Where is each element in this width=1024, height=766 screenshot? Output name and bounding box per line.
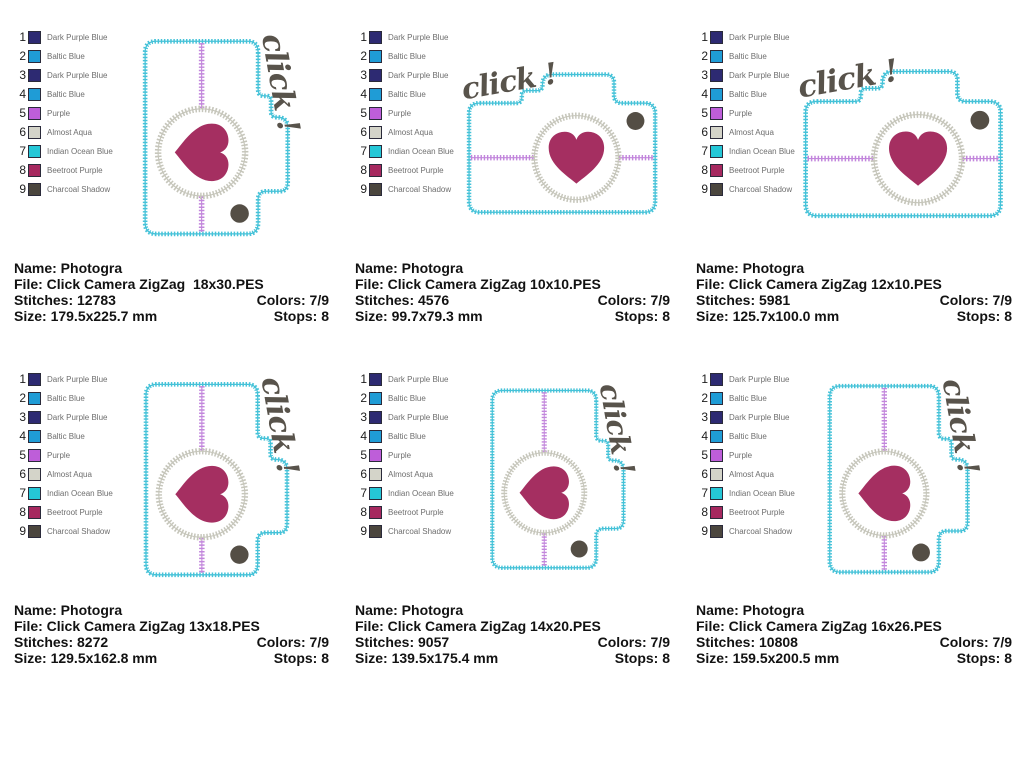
legend-row: 1Dark Purple Blue	[355, 28, 443, 47]
legend-number: 2	[696, 392, 708, 405]
legend-color-swatch	[28, 107, 41, 120]
legend-label: Baltic Blue	[729, 432, 767, 441]
design-info: Name: Photogra File: Click Camera ZigZag…	[14, 602, 329, 666]
legend-label: Baltic Blue	[388, 432, 426, 441]
legend-label: Charcoal Shadow	[388, 527, 451, 536]
design-preview: 1Dark Purple Blue2Baltic Blue3Dark Purpl…	[341, 18, 682, 258]
thread-color-legend: 1Dark Purple Blue2Baltic Blue3Dark Purpl…	[341, 360, 443, 600]
design-file: File: Click Camera ZigZag 10x10.PES	[355, 276, 670, 292]
legend-color-swatch	[710, 69, 723, 82]
legend-row: 2Baltic Blue	[696, 47, 784, 66]
legend-number: 8	[696, 164, 708, 177]
legend-row: 4Baltic Blue	[14, 85, 102, 104]
legend-number: 2	[14, 50, 26, 63]
legend-number: 4	[696, 88, 708, 101]
legend-label: Dark Purple Blue	[47, 375, 107, 384]
legend-color-swatch	[710, 506, 723, 519]
legend-number: 1	[696, 373, 708, 386]
camera-artwork	[443, 18, 682, 258]
legend-label: Dark Purple Blue	[729, 375, 789, 384]
legend-number: 9	[14, 183, 26, 196]
legend-number: 6	[355, 126, 367, 139]
legend-row: 2Baltic Blue	[14, 47, 102, 66]
design-card-18x30: 1Dark Purple Blue2Baltic Blue3Dark Purpl…	[0, 18, 341, 360]
design-info: Name: Photogra File: Click Camera ZigZag…	[696, 602, 1012, 666]
legend-label: Baltic Blue	[388, 52, 426, 61]
legend-label: Dark Purple Blue	[729, 33, 789, 42]
legend-row: 5Purple	[696, 446, 784, 465]
legend-label: Purple	[729, 109, 752, 118]
legend-row: 6Almost Aqua	[696, 465, 784, 484]
legend-label: Charcoal Shadow	[388, 185, 451, 194]
legend-color-swatch	[28, 449, 41, 462]
design-preview: 1Dark Purple Blue2Baltic Blue3Dark Purpl…	[682, 360, 1024, 600]
legend-row: 8Beetroot Purple	[14, 503, 102, 522]
legend-row: 3Dark Purple Blue	[355, 66, 443, 85]
design-name: Name: Photogra	[696, 602, 1012, 618]
design-card-14x20: 1Dark Purple Blue2Baltic Blue3Dark Purpl…	[341, 360, 682, 702]
design-file: File: Click Camera ZigZag 13x18.PES	[14, 618, 329, 634]
legend-color-swatch	[369, 449, 382, 462]
design-info: Name: Photogra File: Click Camera ZigZag…	[696, 260, 1012, 324]
legend-label: Beetroot Purple	[47, 508, 103, 517]
legend-label: Baltic Blue	[729, 90, 767, 99]
legend-number: 7	[696, 145, 708, 158]
legend-number: 1	[355, 31, 367, 44]
camera-artwork	[102, 360, 341, 600]
legend-color-swatch	[28, 468, 41, 481]
legend-number: 8	[14, 506, 26, 519]
camera-artwork	[443, 360, 682, 600]
design-preview: 1Dark Purple Blue2Baltic Blue3Dark Purpl…	[682, 18, 1024, 258]
legend-label: Baltic Blue	[47, 52, 85, 61]
design-colors: Colors: 7/9	[257, 634, 329, 650]
legend-color-swatch	[710, 164, 723, 177]
legend-label: Dark Purple Blue	[729, 71, 789, 80]
legend-row: 7Indian Ocean Blue	[696, 484, 784, 503]
legend-number: 8	[355, 164, 367, 177]
legend-number: 3	[355, 411, 367, 424]
legend-color-swatch	[369, 506, 382, 519]
legend-color-swatch	[28, 164, 41, 177]
legend-number: 7	[696, 487, 708, 500]
legend-color-swatch	[369, 373, 382, 386]
legend-color-swatch	[369, 487, 382, 500]
legend-number: 6	[696, 468, 708, 481]
legend-color-swatch	[369, 164, 382, 177]
legend-color-swatch	[28, 392, 41, 405]
legend-number: 6	[355, 468, 367, 481]
design-colors: Colors: 7/9	[940, 292, 1012, 308]
legend-color-swatch	[710, 411, 723, 424]
legend-color-swatch	[28, 69, 41, 82]
legend-row: 8Beetroot Purple	[355, 503, 443, 522]
legend-row: 9Charcoal Shadow	[696, 180, 784, 199]
legend-label: Beetroot Purple	[729, 166, 785, 175]
legend-number: 3	[14, 411, 26, 424]
legend-row: 7Indian Ocean Blue	[14, 484, 102, 503]
legend-row: 8Beetroot Purple	[696, 503, 784, 522]
design-stitches: Stitches: 8272	[14, 634, 108, 650]
legend-label: Baltic Blue	[729, 394, 767, 403]
legend-color-swatch	[28, 506, 41, 519]
legend-row: 4Baltic Blue	[696, 85, 784, 104]
legend-color-swatch	[369, 69, 382, 82]
legend-number: 1	[14, 31, 26, 44]
design-grid: 1Dark Purple Blue2Baltic Blue3Dark Purpl…	[0, 0, 1024, 702]
legend-color-swatch	[28, 411, 41, 424]
legend-color-swatch	[710, 88, 723, 101]
legend-label: Dark Purple Blue	[388, 33, 448, 42]
legend-label: Purple	[47, 451, 70, 460]
legend-label: Beetroot Purple	[388, 508, 444, 517]
legend-color-swatch	[710, 525, 723, 538]
legend-color-swatch	[369, 411, 382, 424]
legend-number: 5	[696, 449, 708, 462]
design-size: Size: 125.7x100.0 mm	[696, 308, 839, 324]
legend-color-swatch	[28, 126, 41, 139]
legend-color-swatch	[710, 449, 723, 462]
legend-color-swatch	[28, 373, 41, 386]
legend-number: 5	[355, 449, 367, 462]
design-stops: Stops: 8	[274, 308, 329, 324]
legend-color-swatch	[28, 145, 41, 158]
legend-row: 1Dark Purple Blue	[355, 370, 443, 389]
legend-label: Purple	[388, 109, 411, 118]
legend-row: 3Dark Purple Blue	[355, 408, 443, 427]
legend-label: Almost Aqua	[47, 128, 92, 137]
design-name: Name: Photogra	[14, 260, 329, 276]
legend-color-swatch	[28, 525, 41, 538]
legend-number: 8	[696, 506, 708, 519]
design-card-10x10: 1Dark Purple Blue2Baltic Blue3Dark Purpl…	[341, 18, 682, 360]
legend-number: 7	[355, 145, 367, 158]
legend-label: Almost Aqua	[729, 128, 774, 137]
legend-row: 5Purple	[14, 446, 102, 465]
legend-number: 7	[355, 487, 367, 500]
legend-row: 3Dark Purple Blue	[14, 66, 102, 85]
legend-color-swatch	[369, 183, 382, 196]
legend-row: 1Dark Purple Blue	[696, 28, 784, 47]
design-info: Name: Photogra File: Click Camera ZigZag…	[355, 602, 670, 666]
legend-number: 4	[14, 430, 26, 443]
design-file: File: Click Camera ZigZag 16x26.PES	[696, 618, 1012, 634]
thread-color-legend: 1Dark Purple Blue2Baltic Blue3Dark Purpl…	[682, 360, 784, 600]
legend-row: 5Purple	[355, 104, 443, 123]
legend-color-swatch	[28, 183, 41, 196]
legend-color-swatch	[369, 392, 382, 405]
legend-label: Baltic Blue	[47, 432, 85, 441]
design-info: Name: Photogra File: Click Camera ZigZag…	[14, 260, 329, 324]
design-name: Name: Photogra	[355, 602, 670, 618]
legend-row: 6Almost Aqua	[355, 465, 443, 484]
legend-row: 1Dark Purple Blue	[696, 370, 784, 389]
legend-row: 7Indian Ocean Blue	[355, 484, 443, 503]
legend-color-swatch	[28, 50, 41, 63]
thread-color-legend: 1Dark Purple Blue2Baltic Blue3Dark Purpl…	[0, 18, 102, 258]
legend-number: 4	[355, 430, 367, 443]
legend-label: Charcoal Shadow	[47, 185, 110, 194]
legend-label: Purple	[388, 451, 411, 460]
design-size: Size: 139.5x175.4 mm	[355, 650, 498, 666]
legend-color-swatch	[710, 430, 723, 443]
legend-number: 5	[355, 107, 367, 120]
legend-color-swatch	[369, 468, 382, 481]
design-stops: Stops: 8	[615, 650, 670, 666]
legend-row: 1Dark Purple Blue	[14, 370, 102, 389]
design-colors: Colors: 7/9	[598, 292, 670, 308]
legend-color-swatch	[369, 430, 382, 443]
legend-row: 1Dark Purple Blue	[14, 28, 102, 47]
camera-portrait-svg	[819, 377, 989, 583]
legend-label: Almost Aqua	[388, 128, 433, 137]
camera-artwork	[784, 18, 1024, 258]
legend-row: 9Charcoal Shadow	[14, 522, 102, 541]
camera-portrait-svg	[482, 382, 644, 578]
legend-row: 6Almost Aqua	[696, 123, 784, 142]
design-size: Size: 99.7x79.3 mm	[355, 308, 483, 324]
design-info: Name: Photogra File: Click Camera ZigZag…	[355, 260, 670, 324]
legend-color-swatch	[28, 88, 41, 101]
legend-number: 9	[696, 183, 708, 196]
legend-color-swatch	[710, 183, 723, 196]
catalog-sheet: 1Dark Purple Blue2Baltic Blue3Dark Purpl…	[0, 0, 1024, 766]
legend-color-swatch	[710, 145, 723, 158]
camera-landscape-svg	[796, 49, 1012, 227]
legend-number: 6	[14, 126, 26, 139]
design-stitches: Stitches: 5981	[696, 292, 790, 308]
legend-color-swatch	[28, 31, 41, 44]
legend-label: Baltic Blue	[47, 90, 85, 99]
design-card-16x26: 1Dark Purple Blue2Baltic Blue3Dark Purpl…	[682, 360, 1024, 702]
legend-number: 1	[696, 31, 708, 44]
legend-number: 5	[696, 107, 708, 120]
legend-row: 4Baltic Blue	[696, 427, 784, 446]
legend-number: 2	[355, 392, 367, 405]
design-stitches: Stitches: 12783	[14, 292, 116, 308]
legend-label: Dark Purple Blue	[388, 71, 448, 80]
legend-row: 8Beetroot Purple	[355, 161, 443, 180]
legend-color-swatch	[710, 31, 723, 44]
legend-row: 7Indian Ocean Blue	[355, 142, 443, 161]
legend-label: Beetroot Purple	[47, 166, 103, 175]
legend-row: 3Dark Purple Blue	[14, 408, 102, 427]
design-stops: Stops: 8	[957, 308, 1012, 324]
legend-color-swatch	[369, 50, 382, 63]
legend-row: 8Beetroot Purple	[14, 161, 102, 180]
legend-number: 3	[355, 69, 367, 82]
legend-number: 7	[14, 487, 26, 500]
design-colors: Colors: 7/9	[940, 634, 1012, 650]
legend-color-swatch	[369, 126, 382, 139]
legend-number: 5	[14, 107, 26, 120]
design-card-12x10: 1Dark Purple Blue2Baltic Blue3Dark Purpl…	[682, 18, 1024, 360]
legend-label: Charcoal Shadow	[47, 527, 110, 536]
legend-number: 9	[696, 525, 708, 538]
design-stitches: Stitches: 10808	[696, 634, 798, 650]
legend-color-swatch	[710, 50, 723, 63]
legend-number: 4	[696, 430, 708, 443]
design-name: Name: Photogra	[14, 602, 329, 618]
legend-row: 4Baltic Blue	[355, 85, 443, 104]
legend-row: 2Baltic Blue	[696, 389, 784, 408]
legend-label: Almost Aqua	[47, 470, 92, 479]
legend-row: 4Baltic Blue	[355, 427, 443, 446]
camera-artwork	[784, 360, 1024, 600]
legend-label: Almost Aqua	[388, 470, 433, 479]
legend-color-swatch	[710, 487, 723, 500]
legend-color-swatch	[369, 88, 382, 101]
legend-row: 7Indian Ocean Blue	[14, 142, 102, 161]
legend-number: 2	[355, 50, 367, 63]
design-size: Size: 129.5x162.8 mm	[14, 650, 157, 666]
design-preview: 1Dark Purple Blue2Baltic Blue3Dark Purpl…	[0, 360, 341, 600]
legend-color-swatch	[710, 468, 723, 481]
camera-artwork	[102, 18, 341, 258]
legend-number: 3	[14, 69, 26, 82]
legend-number: 8	[14, 164, 26, 177]
design-file: File: Click Camera ZigZag 14x20.PES	[355, 618, 670, 634]
legend-row: 2Baltic Blue	[355, 389, 443, 408]
legend-label: Purple	[729, 451, 752, 460]
legend-number: 6	[14, 468, 26, 481]
legend-row: 6Almost Aqua	[14, 465, 102, 484]
legend-label: Purple	[47, 109, 70, 118]
design-colors: Colors: 7/9	[598, 634, 670, 650]
legend-label: Baltic Blue	[388, 394, 426, 403]
design-file: File: Click Camera ZigZag 18x30.PES	[14, 276, 329, 292]
camera-portrait-svg	[134, 32, 310, 245]
legend-row: 6Almost Aqua	[355, 123, 443, 142]
legend-number: 9	[14, 525, 26, 538]
camera-portrait-svg	[135, 375, 309, 586]
design-stitches: Stitches: 4576	[355, 292, 449, 308]
legend-row: 3Dark Purple Blue	[696, 66, 784, 85]
legend-label: Dark Purple Blue	[388, 375, 448, 384]
legend-label: Dark Purple Blue	[47, 413, 107, 422]
legend-color-swatch	[710, 126, 723, 139]
legend-label: Baltic Blue	[729, 52, 767, 61]
legend-number: 5	[14, 449, 26, 462]
thread-color-legend: 1Dark Purple Blue2Baltic Blue3Dark Purpl…	[682, 18, 784, 258]
legend-row: 5Purple	[696, 104, 784, 123]
legend-label: Dark Purple Blue	[47, 33, 107, 42]
legend-row: 9Charcoal Shadow	[355, 180, 443, 199]
legend-color-swatch	[710, 107, 723, 120]
legend-label: Baltic Blue	[47, 394, 85, 403]
legend-number: 3	[696, 69, 708, 82]
design-name: Name: Photogra	[696, 260, 1012, 276]
legend-label: Charcoal Shadow	[729, 185, 792, 194]
legend-number: 6	[696, 126, 708, 139]
legend-row: 8Beetroot Purple	[696, 161, 784, 180]
legend-color-swatch	[369, 525, 382, 538]
legend-row: 9Charcoal Shadow	[696, 522, 784, 541]
legend-row: 6Almost Aqua	[14, 123, 102, 142]
legend-label: Dark Purple Blue	[388, 413, 448, 422]
design-preview: 1Dark Purple Blue2Baltic Blue3Dark Purpl…	[0, 18, 341, 258]
legend-number: 7	[14, 145, 26, 158]
legend-label: Almost Aqua	[729, 470, 774, 479]
design-stops: Stops: 8	[274, 650, 329, 666]
legend-color-swatch	[28, 430, 41, 443]
design-size: Size: 159.5x200.5 mm	[696, 650, 839, 666]
legend-color-swatch	[369, 145, 382, 158]
legend-number: 2	[696, 50, 708, 63]
legend-color-swatch	[710, 373, 723, 386]
legend-row: 2Baltic Blue	[14, 389, 102, 408]
legend-row: 5Purple	[355, 446, 443, 465]
legend-number: 9	[355, 183, 367, 196]
legend-number: 4	[355, 88, 367, 101]
design-name: Name: Photogra	[355, 260, 670, 276]
legend-number: 1	[14, 373, 26, 386]
legend-row: 9Charcoal Shadow	[14, 180, 102, 199]
design-stops: Stops: 8	[615, 308, 670, 324]
legend-number: 4	[14, 88, 26, 101]
legend-row: 5Purple	[14, 104, 102, 123]
design-colors: Colors: 7/9	[257, 292, 329, 308]
legend-label: Baltic Blue	[388, 90, 426, 99]
camera-landscape-svg	[460, 53, 666, 223]
legend-label: Beetroot Purple	[388, 166, 444, 175]
legend-label: Charcoal Shadow	[729, 527, 792, 536]
legend-color-swatch	[369, 107, 382, 120]
design-stitches: Stitches: 9057	[355, 634, 449, 650]
thread-color-legend: 1Dark Purple Blue2Baltic Blue3Dark Purpl…	[341, 18, 443, 258]
legend-color-swatch	[369, 31, 382, 44]
legend-number: 8	[355, 506, 367, 519]
legend-color-swatch	[28, 487, 41, 500]
design-preview: 1Dark Purple Blue2Baltic Blue3Dark Purpl…	[341, 360, 682, 600]
legend-row: 9Charcoal Shadow	[355, 522, 443, 541]
design-size: Size: 179.5x225.7 mm	[14, 308, 157, 324]
legend-row: 4Baltic Blue	[14, 427, 102, 446]
legend-number: 2	[14, 392, 26, 405]
legend-color-swatch	[710, 392, 723, 405]
legend-row: 2Baltic Blue	[355, 47, 443, 66]
legend-number: 1	[355, 373, 367, 386]
design-card-13x18: 1Dark Purple Blue2Baltic Blue3Dark Purpl…	[0, 360, 341, 702]
legend-label: Beetroot Purple	[729, 508, 785, 517]
legend-label: Dark Purple Blue	[729, 413, 789, 422]
design-stops: Stops: 8	[957, 650, 1012, 666]
legend-row: 7Indian Ocean Blue	[696, 142, 784, 161]
legend-row: 3Dark Purple Blue	[696, 408, 784, 427]
thread-color-legend: 1Dark Purple Blue2Baltic Blue3Dark Purpl…	[0, 360, 102, 600]
legend-number: 3	[696, 411, 708, 424]
legend-number: 9	[355, 525, 367, 538]
legend-label: Dark Purple Blue	[47, 71, 107, 80]
design-file: File: Click Camera ZigZag 12x10.PES	[696, 276, 1012, 292]
